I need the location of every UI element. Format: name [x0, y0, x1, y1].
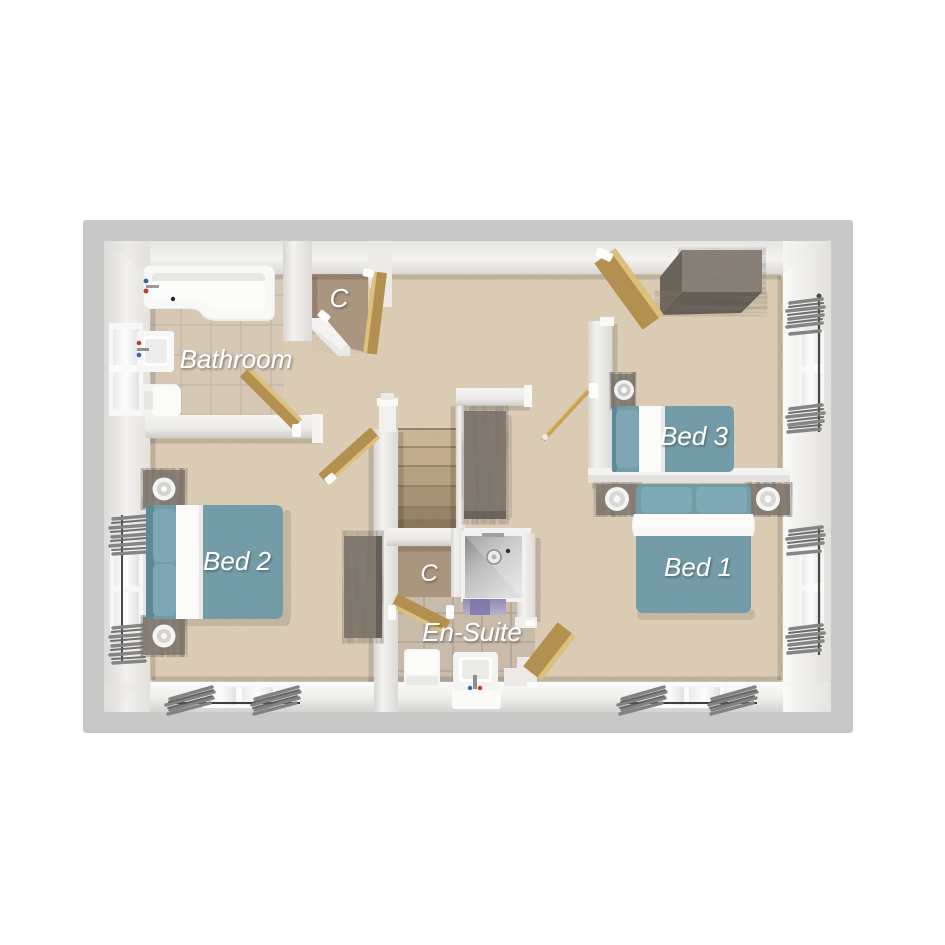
- svg-text:Bed 2: Bed 2: [203, 546, 271, 576]
- svg-text:C: C: [330, 283, 349, 313]
- svg-text:Bathroom: Bathroom: [180, 344, 293, 374]
- svg-text:En-Suite: En-Suite: [422, 617, 522, 647]
- svg-text:C: C: [420, 560, 438, 587]
- svg-text:Bed 3: Bed 3: [660, 421, 728, 451]
- svg-text:Bed 1: Bed 1: [664, 552, 732, 582]
